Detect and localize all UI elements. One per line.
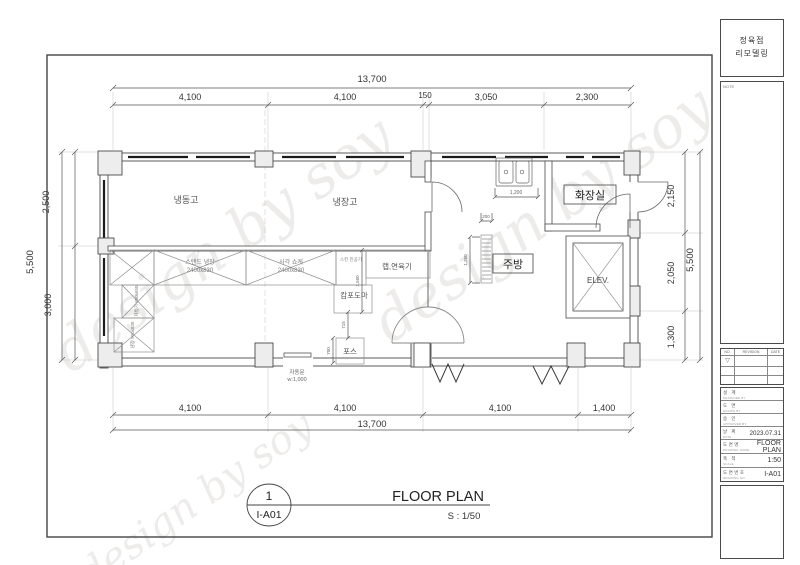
revision-col-revision: REVISION xyxy=(735,349,768,355)
label-cutting-board: 캄포도마 xyxy=(340,291,368,300)
dim-right-2: 2,050 xyxy=(666,262,676,285)
dim-top-4: 3,050 xyxy=(475,92,498,102)
dim-bottom-2: 4,100 xyxy=(334,403,357,413)
label-ice-maker: 제빙기 650x650 xyxy=(133,285,140,316)
revision-col-no: NO. xyxy=(721,349,735,355)
wall-150-lower xyxy=(425,212,431,251)
floor-plan-canvas: 13,700 4,100 4,100 150 3,050 2,300 4,100… xyxy=(0,0,800,565)
info-row-date: 날 짜DATE 2023.07.31 xyxy=(721,427,783,440)
dim-bottom-1: 4,100 xyxy=(179,403,202,413)
sink xyxy=(496,158,532,186)
field-label-en: DRAWING NO. xyxy=(723,476,750,480)
label-auto-door: 자동문 xyxy=(289,368,304,376)
wall-restroom-west xyxy=(545,161,552,231)
dim-left-1: 2,500 xyxy=(41,191,51,214)
info-row-drawn: 도 면DRAWN BY xyxy=(721,401,783,414)
title-number: 1 xyxy=(266,489,273,503)
revision-mark-icon: ▽ xyxy=(721,356,735,366)
info-row-designed: 설 계DESIGNED BY xyxy=(721,388,783,401)
label-stand-fridge-size: 2400x830 xyxy=(187,268,214,274)
info-table: 설 계DESIGNED BY 도 면DRAWN BY 승 인APPROVED B… xyxy=(720,387,784,482)
field-value-scale: 1:50 xyxy=(750,457,783,464)
label-auto-door-width: w:1,000 xyxy=(286,377,306,383)
info-row-approved: 승 인APPROVED BY xyxy=(721,414,783,427)
dim-bottom-total: 13,700 xyxy=(357,419,386,430)
revision-row xyxy=(721,376,783,384)
label-skin-vacuum: 스킨 진공기 xyxy=(340,256,362,263)
dim-bottom-3: 4,100 xyxy=(489,403,512,413)
label-wrap-tenderizer: 랩,연육기 xyxy=(382,262,412,271)
label-stand-fridge: 스탠드 냉장 xyxy=(185,258,215,266)
label-elevator: ELEV. xyxy=(587,276,609,285)
wall-piers xyxy=(98,151,640,367)
interior-walls xyxy=(108,161,630,318)
dim-right-1: 2,150 xyxy=(666,185,676,208)
info-row-drawing-no: 도면번호DRAWING NO. I-A01 xyxy=(721,468,783,481)
field-label-en: SCALE xyxy=(723,462,750,466)
title-code: I-A01 xyxy=(256,509,281,521)
wall-150-upper xyxy=(425,161,431,182)
note-box: NOTE xyxy=(720,81,784,344)
dim-top-5: 2,300 xyxy=(576,92,599,102)
dim-board: 1,560 xyxy=(355,275,360,287)
wall-restroom-south xyxy=(545,224,600,231)
break-marks xyxy=(432,364,569,384)
field-value-drawing-no: I-A01 xyxy=(750,471,783,478)
label-freezer: 냉동고 xyxy=(174,195,199,205)
revision-table: NO. REVISION DATE ▽ xyxy=(720,348,784,385)
revision-row: ▽ xyxy=(721,356,783,367)
automatic-door-leaf xyxy=(284,353,311,357)
drawing-sheet: design by soy design by soy design by so… xyxy=(0,0,800,565)
project-name-line2: 리모델링 xyxy=(735,48,768,61)
label-showcase: 사각 쇼케 xyxy=(279,258,303,266)
dim-sink: 1,200 xyxy=(510,190,523,196)
dim-bottom-4: 1,400 xyxy=(593,403,616,413)
door-coldroom-kitchen xyxy=(432,182,462,212)
field-label-en: DRAWN BY xyxy=(723,409,750,413)
label-kitchen: 주방 xyxy=(503,258,523,271)
dim-counter-length: 1,260 xyxy=(463,254,468,266)
title-scale: S : 1/50 xyxy=(448,511,481,522)
label-fridge-900: 냉장 900x830 xyxy=(129,321,135,348)
dim-counter-width: 200 xyxy=(482,214,490,219)
dim-top-3: 150 xyxy=(418,91,432,100)
skin-vacuum-box xyxy=(336,250,366,285)
note-label: NOTE xyxy=(723,84,734,89)
dim-right-outer: 5,500 xyxy=(685,248,696,272)
title-name: FLOOR PLAN xyxy=(392,489,484,505)
dim-right-3: 1,300 xyxy=(666,326,676,349)
project-name-line1: 정육점 xyxy=(739,35,764,48)
info-row-drawing-name: 도면명DRAWING NAME FLOOR PLAN xyxy=(721,440,783,454)
field-value-date: 2023.07.31 xyxy=(749,430,783,437)
dim-top-total: 13,700 xyxy=(357,74,386,85)
revision-col-date: DATE xyxy=(768,349,783,355)
wall-bottom xyxy=(100,358,640,366)
dim-pos-width: 700 xyxy=(326,347,331,355)
field-value-drawing-name: FLOOR PLAN xyxy=(750,440,783,454)
field-label-en: DRAWING NAME xyxy=(723,448,750,452)
project-name-box: 정육점 리모델링 xyxy=(720,19,784,77)
revision-row xyxy=(721,367,783,376)
dim-pos-depth: 715 xyxy=(341,321,346,329)
dim-top-2: 4,100 xyxy=(334,92,357,102)
field-label-en: APPROVED BY xyxy=(723,422,750,426)
field-label-en: DATE xyxy=(723,435,749,439)
revision-header-row: NO. REVISION DATE xyxy=(721,349,783,356)
label-showcase-size: 2400x830 xyxy=(278,268,305,274)
dim-left-outer: 5,500 xyxy=(25,250,36,274)
empty-box xyxy=(720,485,784,559)
title-column: 정육점 리모델링 NOTE NO. REVISION DATE ▽ xyxy=(720,19,784,559)
label-pos: 포스 xyxy=(343,347,357,356)
dim-top-1: 4,100 xyxy=(179,92,202,102)
label-fridge: 냉장고 xyxy=(333,197,358,207)
label-restroom: 화장실 xyxy=(575,189,605,202)
sheet-title-block: 1 I-A01 FLOOR PLAN S : 1/50 xyxy=(247,484,490,526)
info-row-scale: 축 척SCALE 1:50 xyxy=(721,454,783,468)
field-label-en: DESIGNED BY xyxy=(723,396,750,400)
door-right-exterior xyxy=(638,182,668,212)
equipment-shapes xyxy=(110,158,532,364)
dim-left-2: 3,000 xyxy=(43,294,53,317)
